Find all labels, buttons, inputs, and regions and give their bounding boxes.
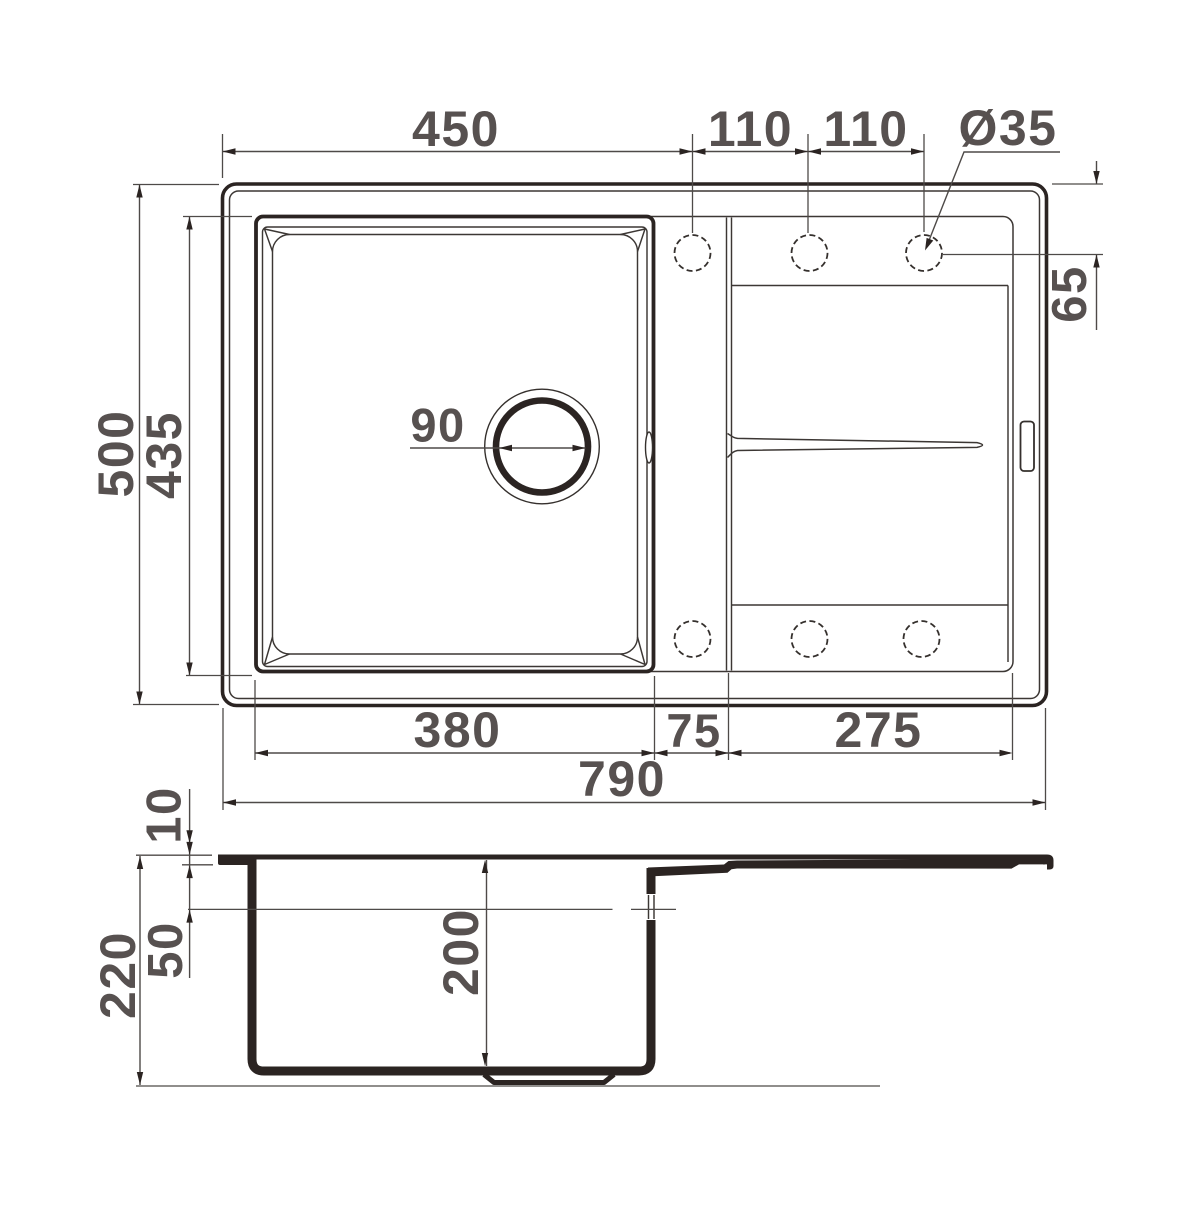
svg-text:275: 275 (835, 702, 923, 758)
svg-text:435: 435 (136, 411, 192, 499)
svg-text:110: 110 (823, 101, 908, 157)
svg-text:10: 10 (138, 786, 192, 844)
svg-text:790: 790 (578, 751, 666, 807)
svg-text:450: 450 (412, 101, 500, 157)
svg-text:65: 65 (1043, 265, 1097, 323)
svg-text:200: 200 (433, 908, 489, 996)
svg-text:110: 110 (708, 101, 793, 157)
svg-text:220: 220 (90, 931, 146, 1019)
svg-text:50: 50 (139, 921, 193, 979)
svg-text:90: 90 (410, 399, 465, 452)
svg-text:75: 75 (666, 704, 721, 757)
svg-text:380: 380 (414, 702, 502, 758)
svg-text:Ø35: Ø35 (958, 100, 1057, 156)
